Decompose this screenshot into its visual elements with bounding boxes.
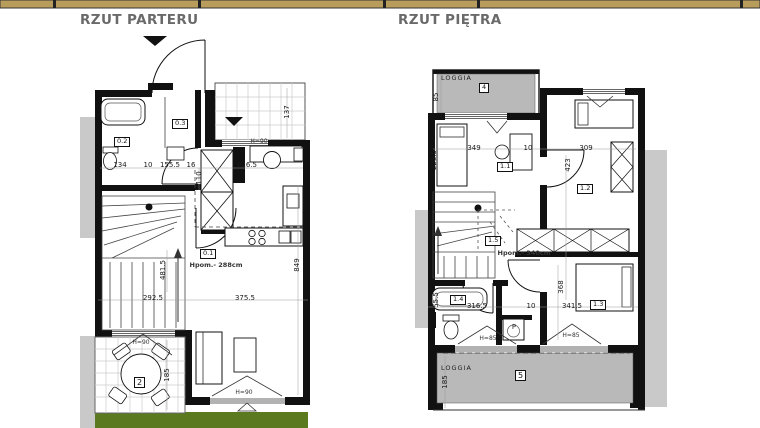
dim-bath-width: 134 <box>106 161 134 169</box>
loggia-bottom-number: 5 <box>515 370 526 381</box>
terrace-label: 2 <box>134 377 145 388</box>
dim-hall-depth: 110 <box>195 166 203 190</box>
dim-bed3-height: 368 <box>557 275 565 299</box>
room-label-0-3: 0.3 <box>172 119 188 129</box>
plan-title-pietro: RZUT PIĘTRA <box>398 12 502 28</box>
dim-living-width-1: 292.5 <box>136 294 170 302</box>
window-note-living: H=90 <box>231 389 257 396</box>
room-label-1-1: 1.1 <box>497 162 513 172</box>
dim-gap-1: 10 <box>140 161 156 169</box>
floorplan-page: RZUT PARTERU RZUT PIĘTRA 134 10 155.5 16… <box>0 0 760 428</box>
room-label-1-3: 1.3 <box>590 300 606 310</box>
dim-study-width: 326.5 <box>230 161 264 169</box>
dim-bed1-width: 349 <box>460 144 488 152</box>
dim-hall-height: 423 <box>564 153 572 177</box>
dim-terrace-height: 185 <box>163 363 171 387</box>
window-note-p2: H=85 <box>558 332 584 339</box>
dim-gap-3: 10 <box>520 144 536 152</box>
dim-bath-nook: 55.5 <box>432 288 440 312</box>
dim-stair-height: 481.5 <box>159 255 167 285</box>
window-note-study: H=90 <box>246 138 272 145</box>
room-label-0-1: 0.1 <box>200 249 216 259</box>
dim-loggia-bottom-depth: 185 <box>441 370 449 394</box>
window-note-p1: H=85 <box>475 335 501 342</box>
dim-loggia-top-depth: 85 <box>432 85 440 109</box>
dim-hall-width: 155.5 <box>155 161 185 169</box>
height-note-parter: Hpom.- 288cm <box>184 261 248 269</box>
dim-porch-depth: 137 <box>283 100 291 124</box>
loggia-top-label: LOGGIA <box>441 74 472 82</box>
dim-living-width-2: 375.5 <box>228 294 262 302</box>
loggia-top-number: 4 <box>479 83 489 93</box>
room-label-0-2: 0.2 <box>114 137 130 147</box>
dim-bed2-width: 309 <box>572 144 600 152</box>
room-label-1-5: 1.5 <box>485 236 501 246</box>
room-label-1-2: 1.2 <box>577 184 593 194</box>
window-note-terrace: H=90 <box>128 339 154 346</box>
dim-bed3-width: 341.5 <box>556 302 588 310</box>
dim-gap-4: 10 <box>524 302 538 310</box>
room-label-1-4: 1.4 <box>450 295 466 305</box>
dim-living-height: 849 <box>293 253 301 277</box>
dim-bath-width-p: 316.5 <box>462 302 492 310</box>
plan-title-parter: RZUT PARTERU <box>80 12 199 28</box>
height-note-pietro: Hpom.- 340cm <box>492 249 556 257</box>
washer-label: P <box>505 323 523 331</box>
dim-bed1-height: 228.5 <box>430 145 438 175</box>
floorplan-drawing <box>0 0 760 428</box>
